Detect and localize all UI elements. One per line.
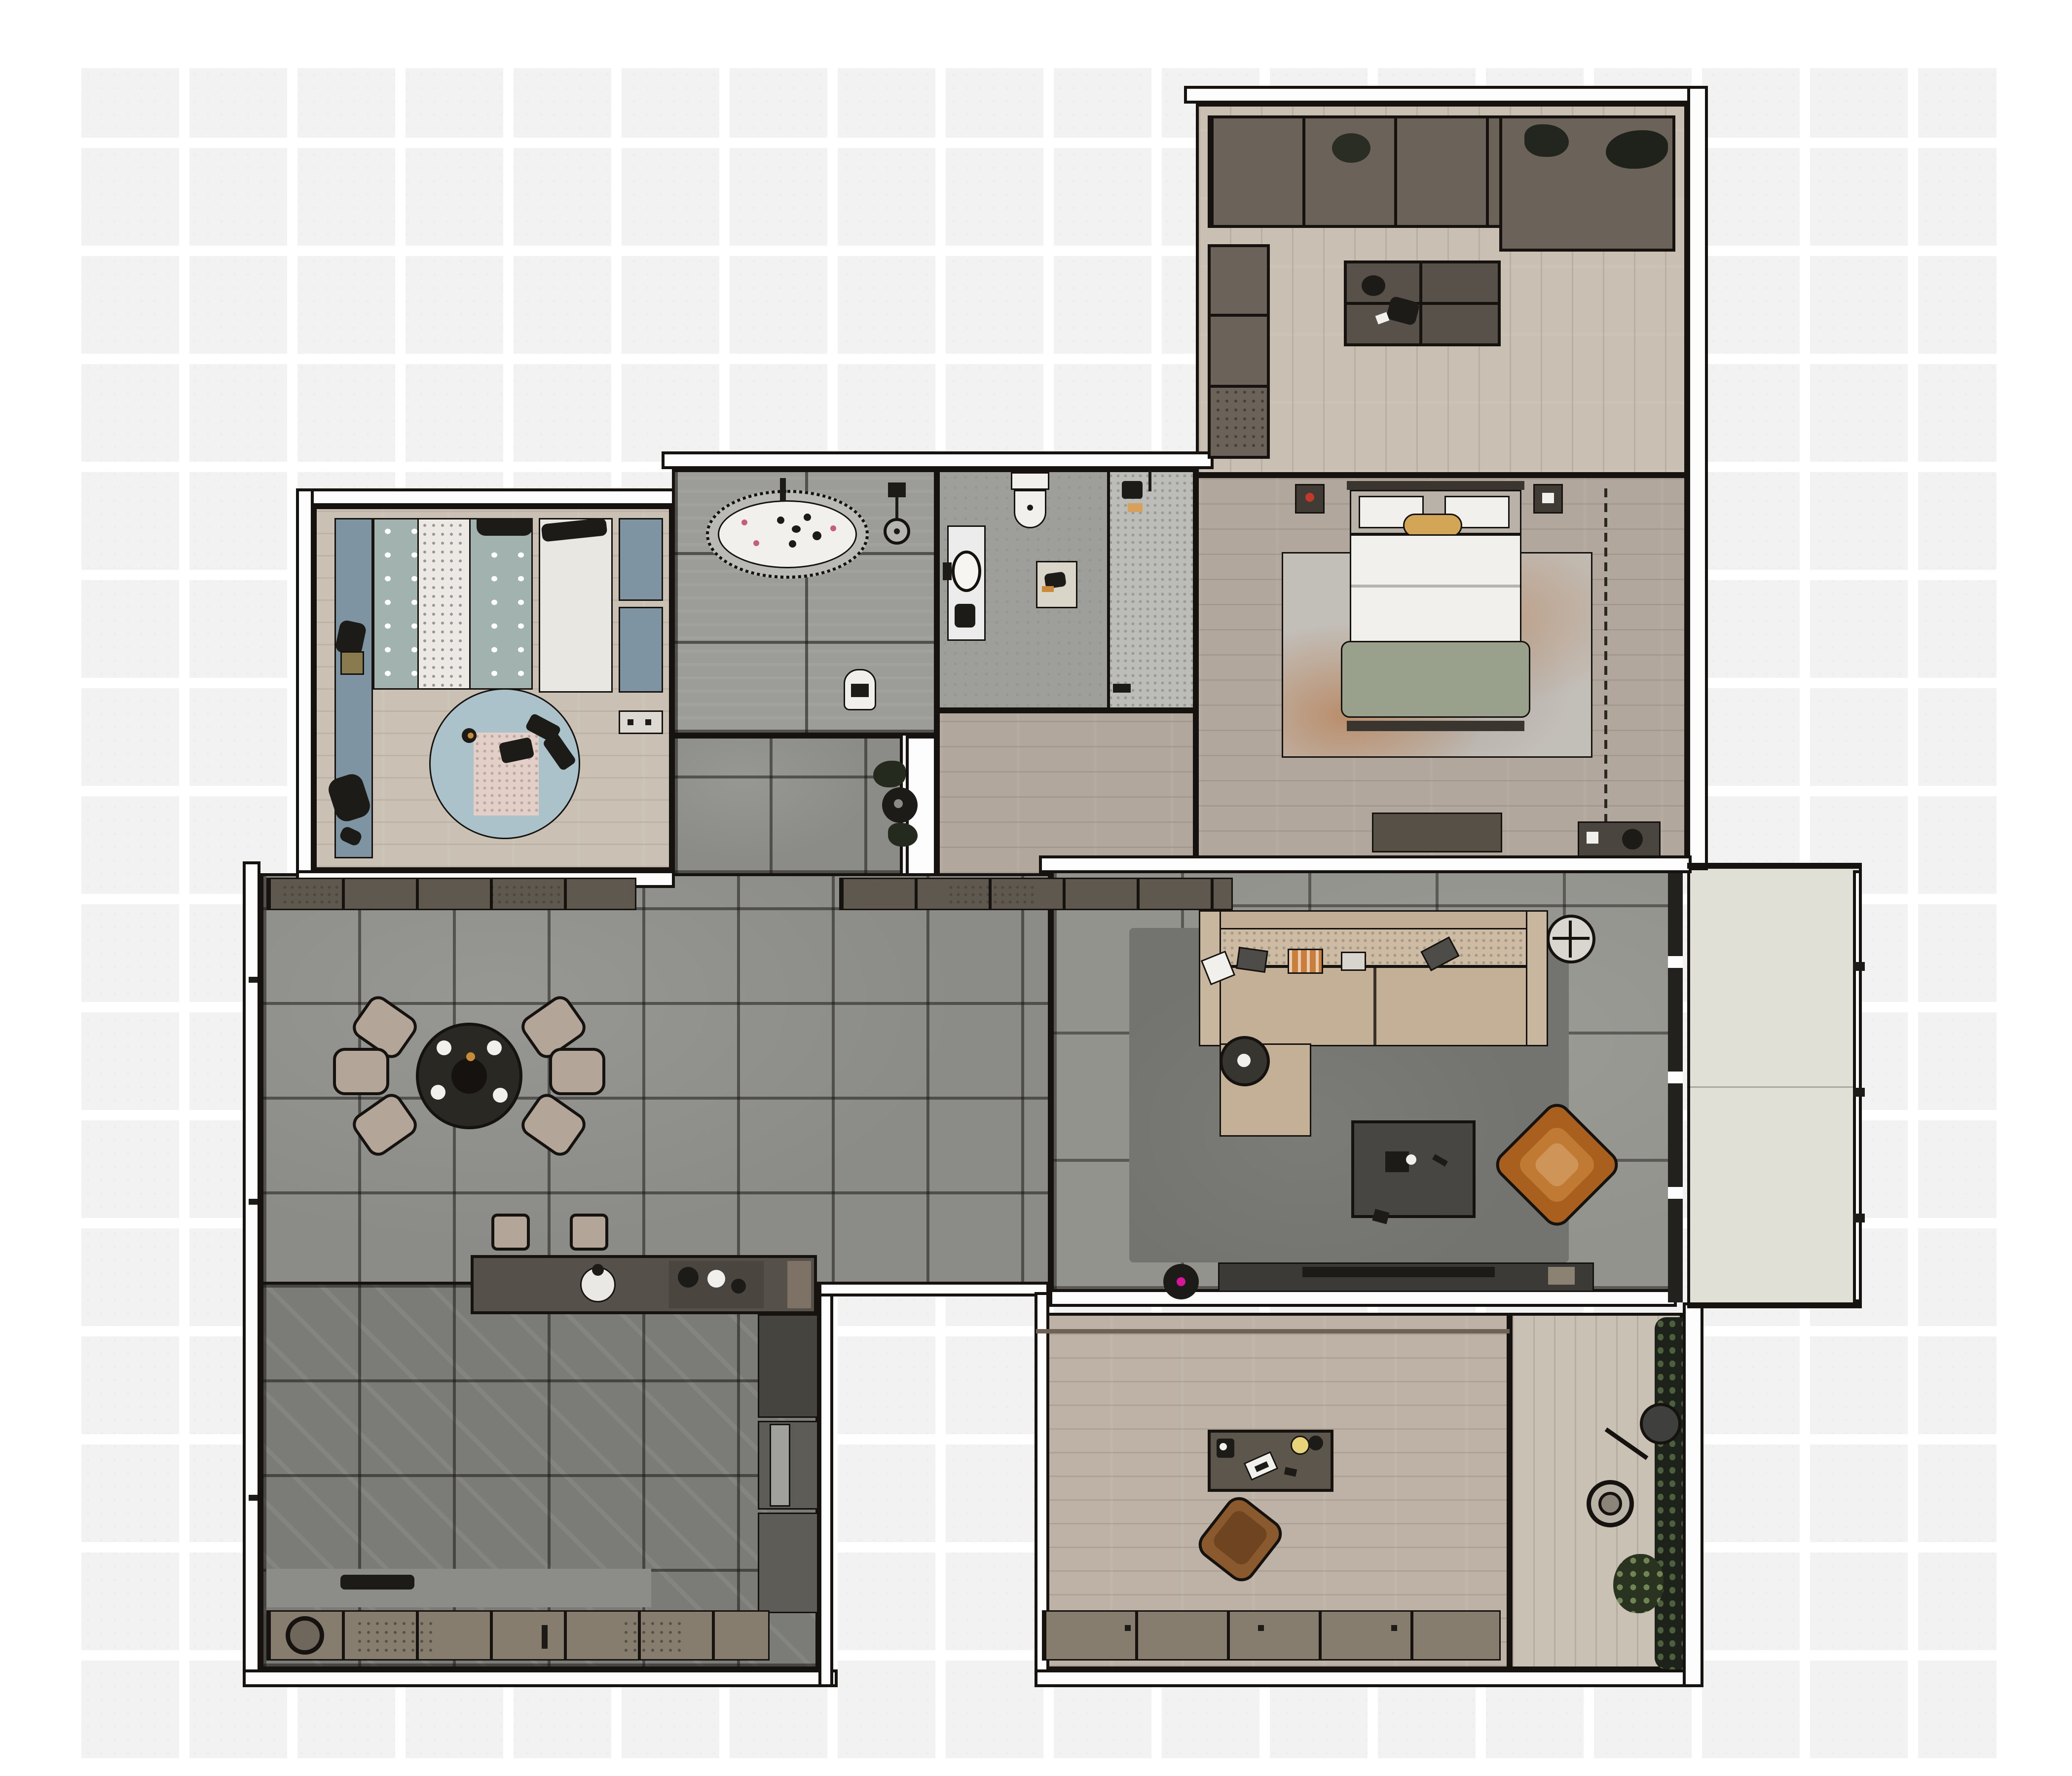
sofa-pillow-orange-striped [1288,949,1323,974]
office-lamp-arm [1308,1436,1323,1450]
floor-plan-screenshot [0,0,2072,1776]
nightstand-right-object [1542,493,1554,503]
wall-kids-top [296,488,675,506]
shower-hose [895,497,898,518]
laundry-basket-slot [851,684,869,697]
office-cabinet-knob-3 [1391,1625,1397,1631]
bathtub-basin [718,500,857,568]
kids-toy-ring-dot [468,733,474,739]
kids-bed-runner-pattern [420,521,468,687]
kids-bed [373,518,533,690]
hob-pot-2 [707,1270,725,1288]
walk-in-shower-floor [1107,472,1193,707]
dining-chair-4 [549,1048,605,1095]
kitchen-cooktop [286,1616,324,1655]
nightstand-left-plant [1305,493,1314,502]
bathtub-petal-2 [792,525,801,533]
bed-foot-blanket [1341,641,1530,718]
kitchen-counter-tray [340,1575,414,1590]
wall-kitchen-bottom [243,1669,838,1687]
office-desk-lamp [1291,1436,1310,1455]
dining-chair-3 [333,1048,389,1095]
wall-porch-top [818,1282,1049,1296]
bathtub [706,490,869,579]
sofa-arm-right [1524,910,1548,1046]
office-cabinet-knob-2 [1258,1625,1264,1631]
kitchen-counter-strip [266,1569,651,1607]
bathtub-petal-5 [789,540,796,548]
study-desk-divider-h [1344,302,1501,305]
dining-centerpiece-accent [466,1052,475,1061]
kids-wardrobe-white [539,518,613,693]
wall-living-top [1039,855,1692,873]
shower-glass-panel [1107,472,1110,707]
vanity-faucet [943,562,952,580]
kids-cabinet-blue-lower [619,607,663,693]
terrace-hedge-plants [1655,1317,1683,1669]
wall-study-top [1184,86,1699,104]
bed-headboard [1347,481,1524,490]
bathtub-petal-1 [777,517,784,524]
bedroom-wardrobe-dashed-zone [1604,488,1607,852]
tv [1302,1267,1495,1277]
bed-foot-bench [1347,721,1524,731]
balcony-railing-right [1853,870,1862,1302]
bed-duvet-fold [1350,585,1521,588]
coffee-table [1351,1120,1476,1218]
robot-vacuum-led [1177,1277,1185,1286]
dining-plate-3 [431,1085,445,1100]
hallway-plant-leaves-top [873,761,906,787]
terrace-floor-lamp-shade [1640,1403,1681,1444]
wall-terrace-right [1683,1302,1703,1687]
hallway-wood-floor [937,710,1196,876]
study-side-cabinet-plant [1214,388,1264,453]
sideboard-left-decor [488,884,562,904]
kids-cabinet-blue-upper [619,518,663,601]
bathtub-petal-4 [813,531,821,540]
kitchen-counter-objects-1 [355,1619,438,1652]
dining-plate-4 [493,1088,508,1103]
hallway-plant-leaves-bottom [888,823,918,847]
office-cabinet-row [1042,1610,1501,1661]
bathtub-petal-3 [804,514,811,521]
bedroom-double-bed [1347,481,1524,749]
kitchen-tall-unit-highlight [770,1424,790,1507]
bathtub-pink-petal-2 [753,540,759,546]
sofa-pillow-dark-1 [1236,947,1268,973]
bar-stool-2 [570,1214,608,1251]
kitchen-island [471,1255,817,1314]
toilet-drain-dot [1027,505,1033,511]
kids-tray-dot-1 [628,719,633,725]
balcony-post-3 [1853,1214,1865,1222]
wall-bath-top [662,451,1214,469]
bathtub-pink-petal-1 [741,519,747,525]
toilet [1011,472,1049,531]
corner-unit-object [1587,832,1598,844]
balcony-railing-top [1687,863,1862,869]
hallway-plant-center [894,799,903,808]
kitchen-tall-unit-1 [758,1314,818,1418]
window-wall-balcony [1668,873,1683,1302]
hob-pot-1 [678,1267,699,1288]
balcony-railing-bottom [1687,1302,1862,1308]
corner-unit-plant [1622,829,1643,850]
island-end-panel [787,1261,811,1308]
kitchen-tall-unit-3 [758,1513,818,1613]
coffee-table-tray [1385,1151,1409,1172]
bedroom-dresser [1372,813,1502,852]
tv-console-decor [1548,1267,1575,1285]
kids-tray-dot-2 [645,719,651,725]
kids-bed-headboard-toys [477,518,533,536]
island-faucet [592,1264,604,1276]
hob-pot-3 [731,1279,746,1294]
hallway-tiled-floor [672,736,903,876]
shower-head [1122,481,1143,499]
terrace-plant-cluster [1613,1554,1664,1613]
toilet-tank [1011,472,1049,490]
bathtub-pink-petal-3 [830,525,836,531]
wall-west-main [243,861,260,1687]
balcony-floor-joint [1687,1086,1862,1088]
office-top-trim [1036,1329,1510,1333]
kitchen-counter-objects-2 [622,1619,687,1652]
black-side-table-cup [1237,1054,1251,1067]
coffee-table-cup [1406,1154,1416,1165]
dining-sideboard-right [839,878,1233,910]
kitchen-cabinet-divider-accent [542,1625,548,1649]
bed-accent-cushion [1403,514,1462,537]
kids-tray [619,710,663,734]
wall-kids-left [296,488,314,888]
dining-plate-1 [437,1040,451,1055]
vanity-basin [952,551,981,592]
sideboard-left-plant [281,884,340,904]
sofa-pillow-gray [1341,952,1366,971]
dining-plate-2 [487,1040,502,1055]
bathtub-faucet [780,478,786,502]
balcony-post-2 [1853,1088,1865,1097]
side-table-cross-h [1553,937,1590,940]
kitchen-base-cabinet-row [266,1610,770,1661]
dining-centerpiece [451,1058,487,1094]
wall-east-upper [1687,86,1708,870]
terrace-lamp-base-inner [1598,1492,1622,1516]
sofa-seat-split [1373,966,1376,1046]
l-shaped-sofa [1199,910,1548,1137]
kids-toy-box [340,651,364,675]
floor-plan [0,0,2072,1776]
window-tick-1 [249,977,258,983]
shower-fixture-icon [888,482,906,497]
window-tick-3 [249,1495,258,1501]
office-cabinet-knob-1 [1125,1625,1131,1631]
shower-soap-tray [1128,503,1143,512]
office-speaker-cone [1220,1443,1227,1450]
wall-kitchen-right [818,1282,833,1687]
vanity-stool [955,604,975,628]
floor-drain-dot [894,528,900,534]
window-tick-2 [249,1199,258,1205]
shower-arm [1148,471,1151,491]
sideboard-right-decor [947,884,1036,904]
bar-stool-1 [491,1214,530,1251]
balcony-post-1 [1853,962,1865,971]
bed-duvet [1350,534,1521,650]
bath-mat-soap [1042,586,1054,592]
shower-door-stop [1113,684,1131,693]
study-desk-chair-1 [1362,275,1385,296]
study-plant-3 [1332,133,1370,163]
wall-south-right [1035,1669,1703,1687]
